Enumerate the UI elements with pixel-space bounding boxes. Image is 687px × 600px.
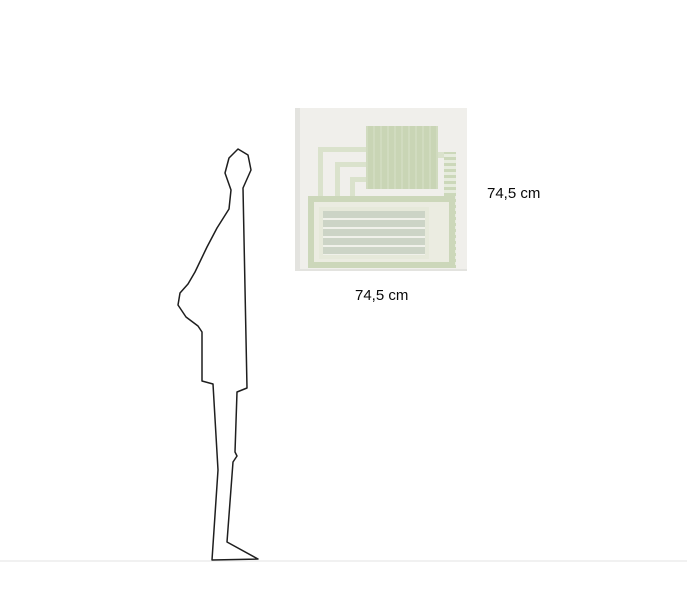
artwork-green-square <box>366 126 438 189</box>
artwork-width-label: 74,5 cm <box>355 288 408 304</box>
human-outline <box>178 149 258 560</box>
artwork-preview <box>295 108 467 271</box>
artwork-height-label: 74,5 cm <box>487 186 540 202</box>
artwork-stripes <box>323 211 425 255</box>
human-scale-figure-icon <box>0 0 687 600</box>
size-comparison-view: 74,5 cm 74,5 cm <box>0 0 687 600</box>
